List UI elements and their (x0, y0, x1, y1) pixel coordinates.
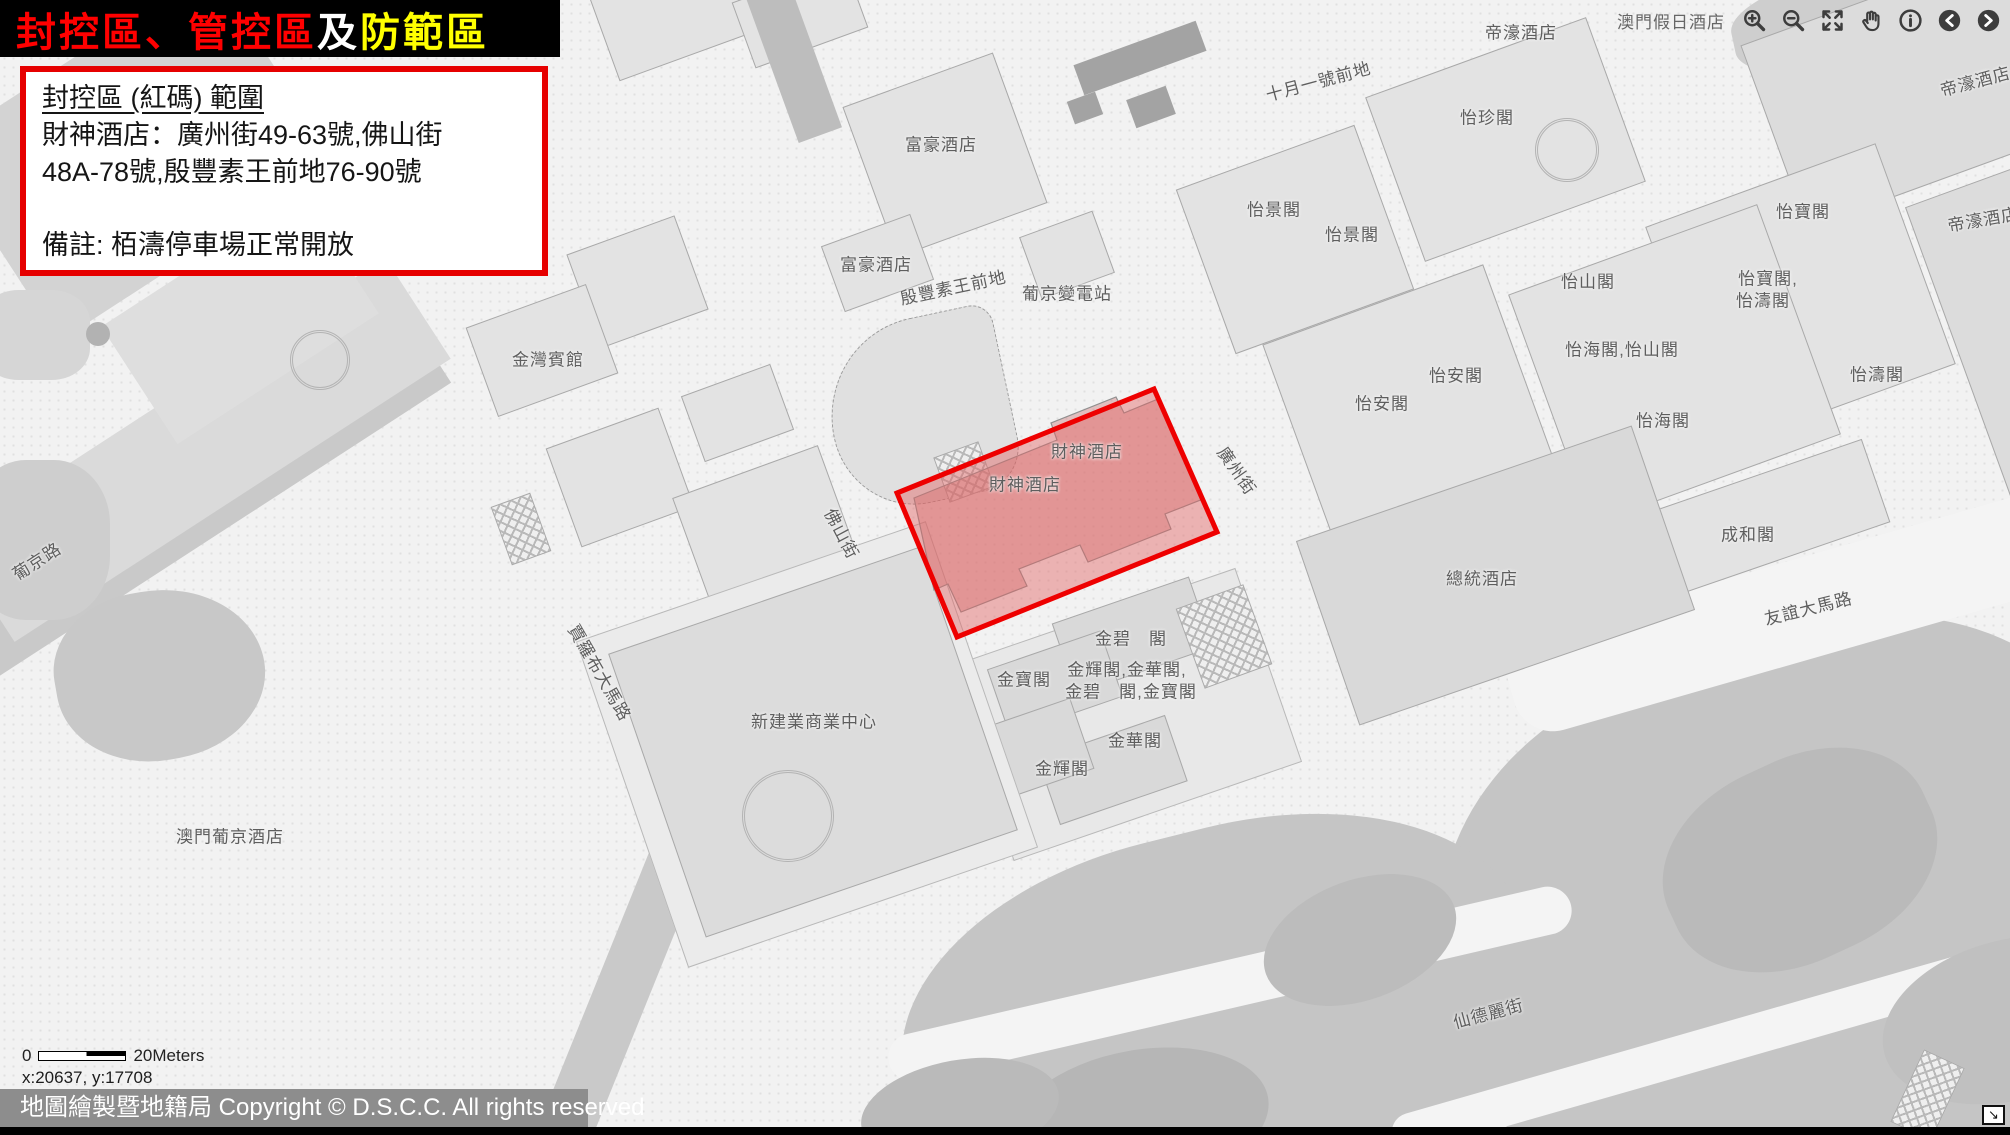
scale-end-label: 20Meters (133, 1046, 204, 1066)
page-title: 封控區、管控區及防範區 (0, 0, 560, 57)
scale-start-label: 0 (22, 1046, 31, 1066)
fountain (1535, 118, 1599, 182)
map-label: 廣州街 (1212, 441, 1263, 500)
next-extent-icon[interactable] (1975, 7, 2002, 34)
map-toolbar: 澳門假日酒店 (1617, 4, 2002, 36)
plaza-structure (1073, 21, 1206, 96)
full-extent-icon[interactable] (1819, 7, 1846, 34)
cursor-coordinates: x:20637, y:17708 (22, 1068, 152, 1088)
green-area (0, 290, 90, 380)
info-box-title: 封控區 (紅碼) 範圍 (42, 80, 526, 117)
building-substation (1019, 211, 1115, 300)
bottom-border (0, 1127, 2010, 1135)
title-segment-white: 及 (317, 0, 360, 58)
lockdown-info-box: 封控區 (紅碼) 範圍 財神酒店：廣州街49-63號,佛山街 48A-78號,殷… (20, 66, 548, 276)
plaza-yinfeng (813, 301, 1028, 519)
copyright-bar: 地圖繪製暨地籍局 Copyright © D.S.C.C. All rights… (0, 1089, 588, 1127)
plaza-structure (1126, 86, 1176, 129)
zoom-in-icon[interactable] (1741, 7, 1768, 34)
building-yizhen (1365, 17, 1646, 262)
previous-extent-icon[interactable] (1936, 7, 1963, 34)
scale-bar: 0 20Meters (22, 1046, 204, 1066)
plaza-structure (1067, 92, 1103, 125)
map-label: 澳門葡京酒店 (176, 823, 284, 848)
map-canvas[interactable]: 帝濠酒店十月一號前地怡珍閣富豪酒店帝濠酒店怡景閣怡寶閣帝濠酒店怡景閣富豪酒店怡山… (0, 0, 2010, 1135)
map-label-holiday-inn: 澳門假日酒店 (1617, 8, 1725, 33)
building (681, 364, 794, 462)
tree-icon (86, 322, 110, 346)
info-box-note: 備註: 栢濤停車場正常開放 (42, 227, 526, 264)
pond (0, 460, 110, 620)
pan-icon[interactable] (1858, 7, 1885, 34)
scale-bar-graphic (38, 1051, 126, 1061)
info-box-line: 48A-78號,殷豐素王前地76-90號 (42, 154, 526, 191)
title-segment-yellow: 防範區 (360, 0, 489, 58)
info-box-spacer (42, 191, 526, 227)
zoom-out-icon[interactable] (1780, 7, 1807, 34)
identify-icon[interactable] (1897, 7, 1924, 34)
fountain (290, 330, 350, 390)
map-label: 財神酒店 (1051, 438, 1123, 463)
resize-handle-icon[interactable]: ↘ (1982, 1105, 2005, 1125)
building (546, 408, 695, 548)
title-segment-red: 封控區、管控區 (16, 0, 317, 58)
info-box-line: 財神酒店：廣州街49-63號,佛山街 (42, 117, 526, 154)
building (589, 0, 751, 81)
crosswalk (491, 493, 552, 566)
scale-bar-segment (39, 1052, 125, 1056)
map-label: 十月一號前地 (1263, 54, 1374, 106)
fountain (742, 770, 834, 862)
